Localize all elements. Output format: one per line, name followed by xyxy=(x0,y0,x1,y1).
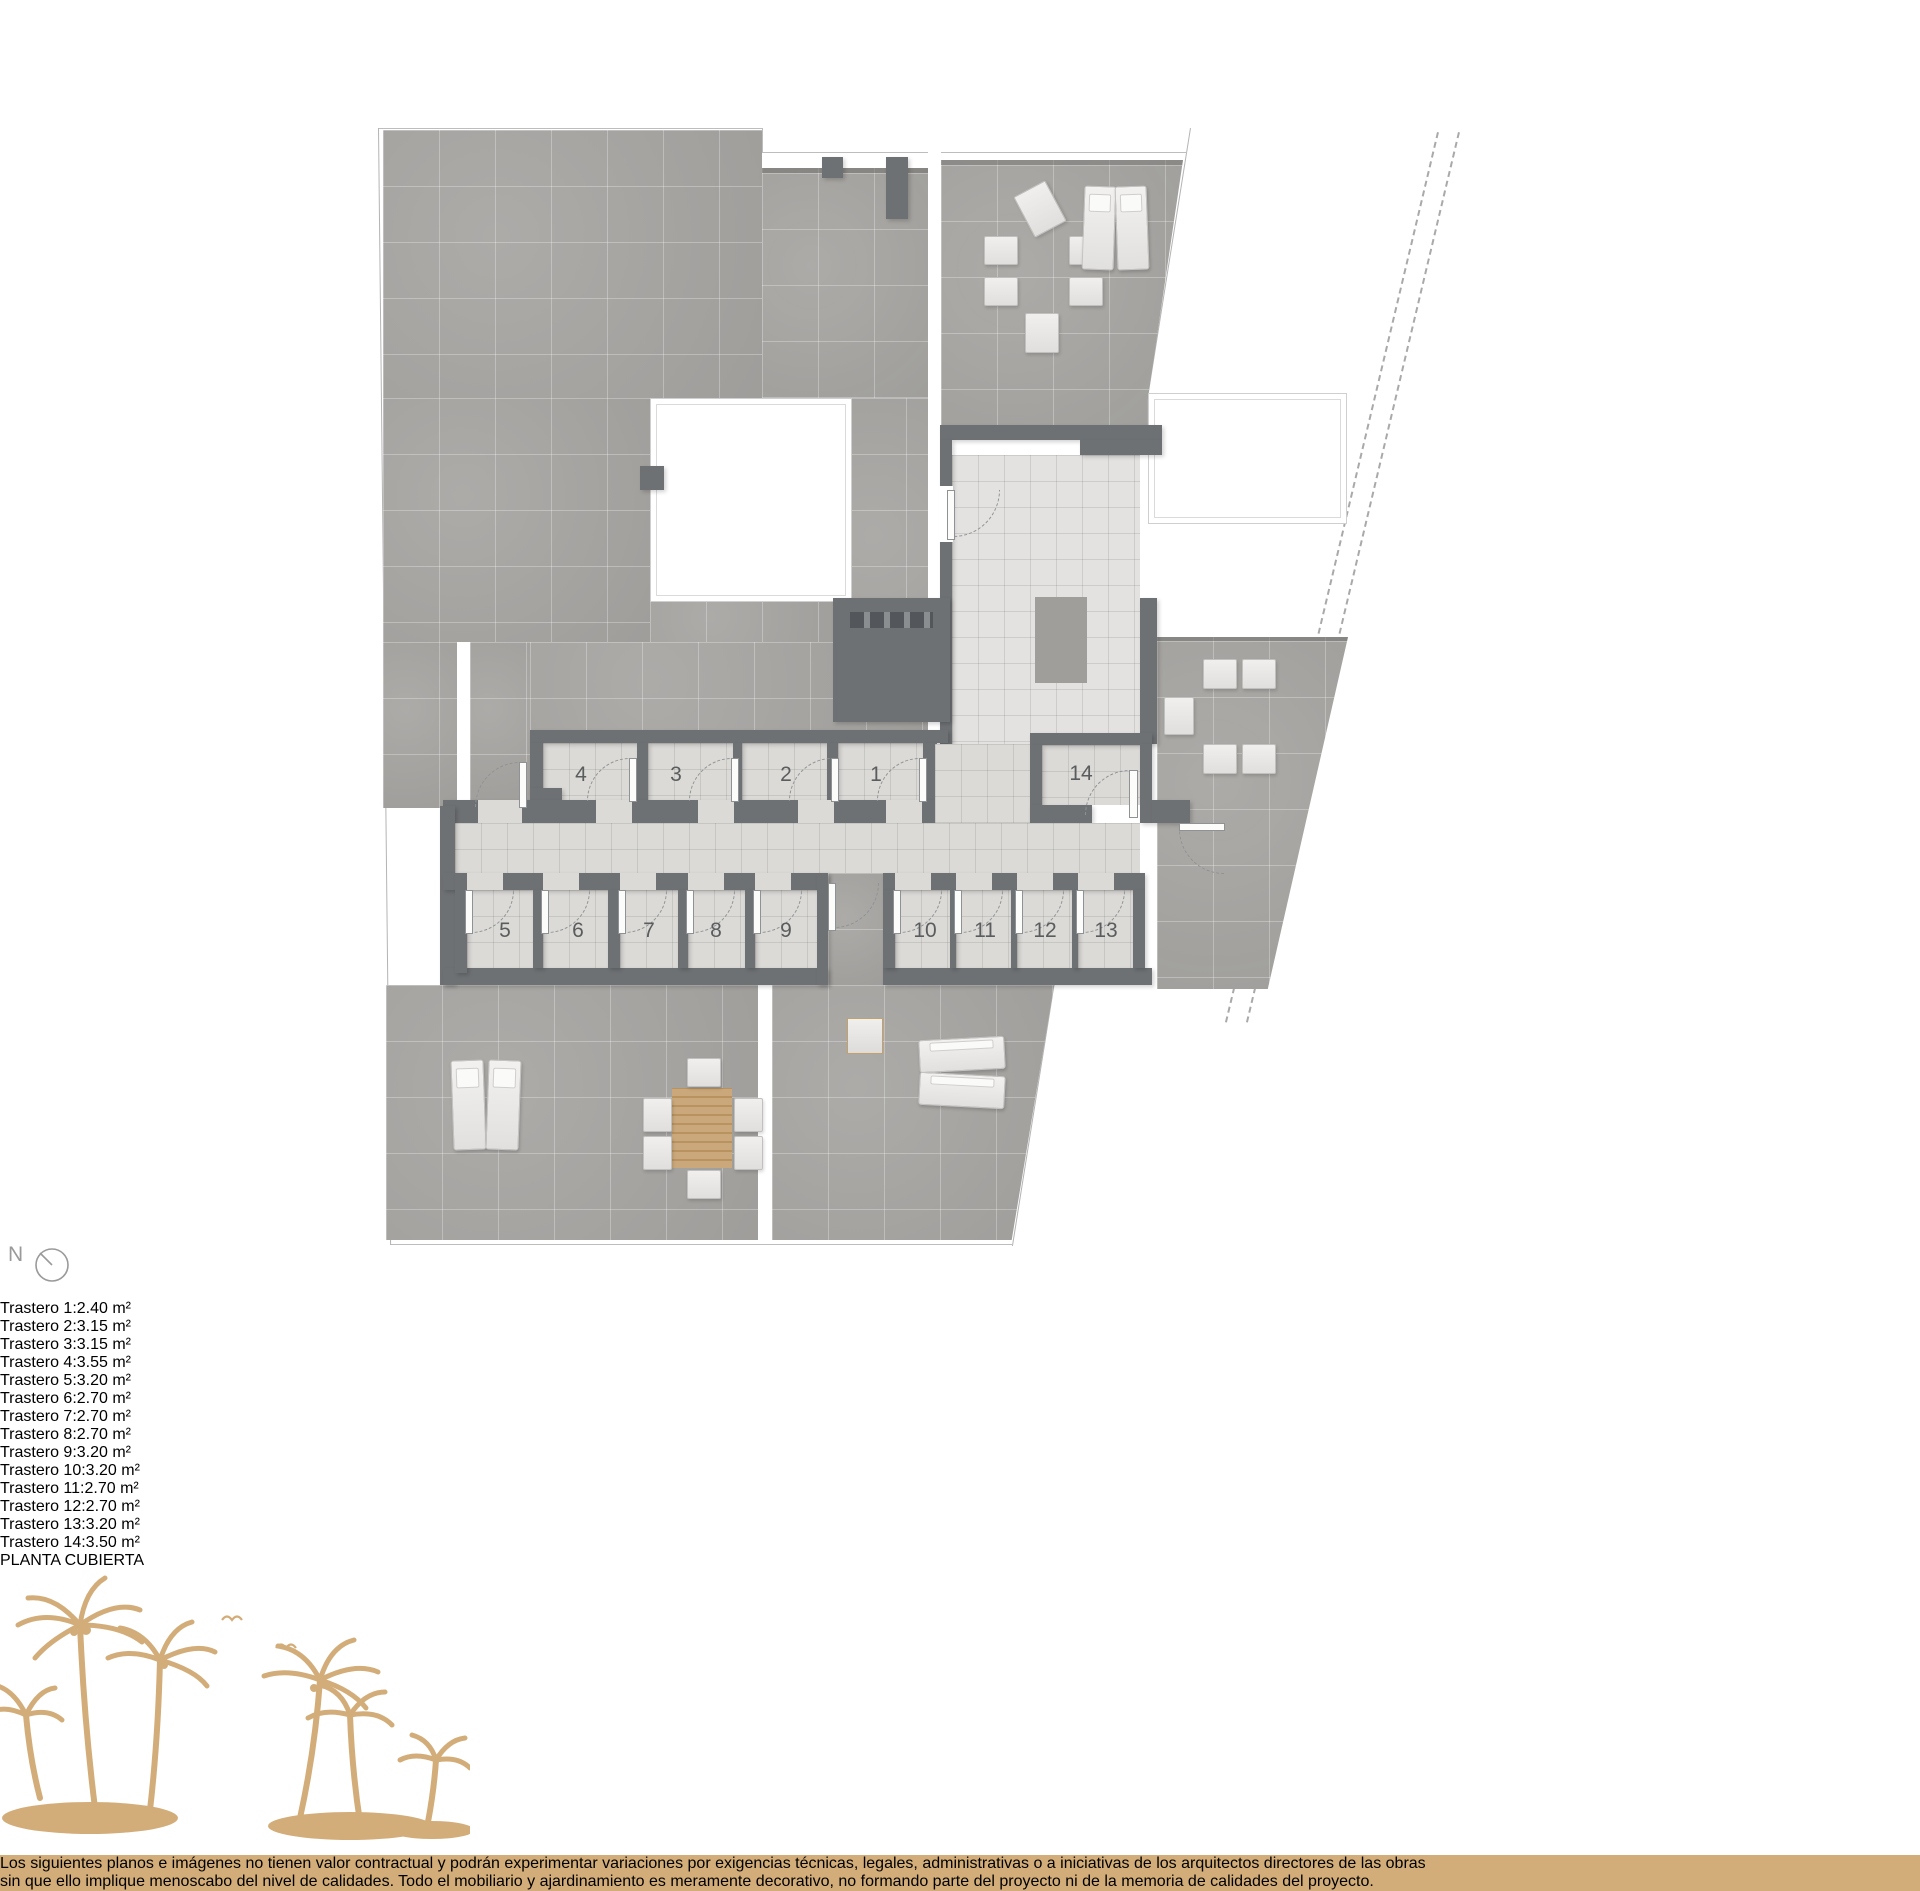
sheet-bottom-edge xyxy=(390,1244,1012,1245)
room6-door-gap xyxy=(543,873,579,890)
dining-chair xyxy=(687,1170,721,1199)
core-wall-top xyxy=(940,425,1162,440)
dining-chair xyxy=(984,277,1018,306)
terrace-left-of-void xyxy=(383,398,650,642)
roof-gap-strip-left xyxy=(457,642,470,808)
footer-disclaimer-line1: Los siguientes planos e imágenes no tien… xyxy=(0,1855,1920,1873)
room-label-11: 11 xyxy=(974,919,996,943)
north-label: N xyxy=(8,1243,23,1266)
room11-door-gap xyxy=(956,873,992,890)
room8-door-leaf xyxy=(686,890,694,934)
parasol xyxy=(0,636,82,718)
roof-void-center xyxy=(650,398,852,602)
stair-treads-lower xyxy=(0,288,105,340)
room-label-9: 9 xyxy=(780,919,792,943)
dining-table-wood xyxy=(1196,692,1280,741)
plants xyxy=(0,613,36,636)
legend-value: 2.70 m² xyxy=(77,1408,131,1425)
passage-door-leaf xyxy=(828,883,836,931)
room14-wall-right xyxy=(1140,744,1152,823)
wall-4-3 xyxy=(637,743,648,803)
core-wall-top-nub xyxy=(1080,440,1162,455)
sheet-top-edge xyxy=(378,128,762,129)
dining-chair xyxy=(1242,659,1276,689)
dining-chair xyxy=(687,1058,721,1087)
room-label-12: 12 xyxy=(1033,919,1056,943)
legend-label: Trastero 7: xyxy=(0,1408,77,1425)
legend-value: 3.50 m² xyxy=(86,1534,140,1551)
room-label-13: 13 xyxy=(1094,919,1117,943)
area-legend: Trastero 1:2.40 m² Trastero 2:3.15 m² Tr… xyxy=(0,1300,1920,1552)
legend-label: Trastero 8: xyxy=(0,1426,77,1443)
footer-disclaimer-line2: sin que ello implique menoscabo del nive… xyxy=(0,1873,1920,1891)
legend-label: Trastero 2: xyxy=(0,1318,77,1335)
plants xyxy=(0,571,55,613)
legend-row: Trastero 3:3.15 m² xyxy=(0,1336,1920,1354)
legend-row: Trastero 11:2.70 m² xyxy=(0,1480,1920,1498)
dining-chair xyxy=(1069,277,1103,306)
room4-door-gap xyxy=(596,800,632,823)
plants xyxy=(0,1111,58,1159)
room12-door-gap xyxy=(1017,873,1053,890)
legend-row: Trastero 6:2.70 m² xyxy=(0,1390,1920,1408)
room13-door-leaf xyxy=(1076,890,1084,934)
room14-wall-bottom xyxy=(1030,805,1092,823)
legend-value: 2.70 m² xyxy=(77,1390,131,1407)
dining-chair xyxy=(643,1098,672,1132)
parasol xyxy=(0,826,88,914)
low-table xyxy=(847,1018,883,1054)
legend-row: Trastero 10:3.20 m² xyxy=(0,1462,1920,1480)
legend-label: Trastero 3: xyxy=(0,1336,77,1353)
legend-value: 3.15 m² xyxy=(77,1336,131,1353)
room12-door-leaf xyxy=(1015,890,1023,934)
sun-lounger xyxy=(918,1072,1006,1109)
room-label-2: 2 xyxy=(780,763,792,787)
room7-door-leaf xyxy=(618,890,626,934)
legend-value: 2.70 m² xyxy=(84,1480,138,1497)
terrace-bottom-right xyxy=(772,985,1054,1240)
legend-row: Trastero 2:3.15 m² xyxy=(0,1318,1920,1336)
north-arrow: N xyxy=(0,1225,84,1295)
room-label-14: 14 xyxy=(1069,762,1092,786)
legend-row: Trastero 1:2.40 m² xyxy=(0,1300,1920,1318)
room-label-6: 6 xyxy=(572,919,584,943)
side-table-round xyxy=(0,438,21,459)
terrace-left-strip xyxy=(383,642,457,808)
legend-value: 3.20 m² xyxy=(86,1462,140,1479)
terrace-door-leaf xyxy=(519,762,527,808)
legend-label: Trastero 1: xyxy=(0,1300,77,1317)
legend-value: 2.70 m² xyxy=(86,1498,140,1515)
parasol xyxy=(0,459,74,533)
page: { "plan": { "title": "PLANTA CUBIERTA", … xyxy=(0,0,1920,1370)
sun-lounger xyxy=(1115,185,1150,270)
legend-value: 3.20 m² xyxy=(77,1372,131,1389)
room10-door-leaf xyxy=(893,890,901,934)
plants xyxy=(0,914,50,954)
dining-chair xyxy=(1025,313,1059,353)
room-label-3: 3 xyxy=(670,763,682,787)
legend-label: Trastero 14: xyxy=(0,1534,86,1551)
dining-chair xyxy=(734,1098,763,1132)
legend-row: Trastero 5:3.20 m² xyxy=(0,1372,1920,1390)
legend-row: Trastero 13:3.20 m² xyxy=(0,1516,1920,1534)
stair-landing xyxy=(1035,597,1087,683)
planter-box xyxy=(0,770,28,798)
room-label-5: 5 xyxy=(499,919,511,943)
room3-door-leaf xyxy=(731,758,739,802)
room4-door-leaf xyxy=(629,758,637,802)
sun-lounger xyxy=(450,1059,486,1150)
hedge xyxy=(0,718,196,748)
legend-label: Trastero 5: xyxy=(0,1372,77,1389)
legend-label: Trastero 12: xyxy=(0,1498,86,1515)
room14-door-leaf xyxy=(1129,770,1138,818)
legend-row: Trastero 14:3.50 m² xyxy=(0,1534,1920,1552)
legend-label: Trastero 4: xyxy=(0,1354,77,1371)
stair-treads-right xyxy=(0,0,50,288)
room5-door-leaf xyxy=(465,890,473,934)
legend-value: 3.15 m² xyxy=(77,1318,131,1335)
room1-door-leaf xyxy=(919,758,927,802)
room14-wall-nub xyxy=(1152,800,1190,823)
dining-table-wood xyxy=(1017,233,1068,312)
legend-value: 2.40 m² xyxy=(77,1300,131,1317)
room6-door-leaf xyxy=(541,890,549,934)
room-label-1: 1 xyxy=(870,763,882,787)
bottomrow-wall-bottom-a xyxy=(443,968,828,985)
page-title: PLANTA CUBIERTA xyxy=(0,1552,1920,1570)
legend-row: Trastero 7:2.70 m² xyxy=(0,1408,1920,1426)
floor-plan: 1 2 3 4 5 6 7 8 9 10 11 12 13 14 xyxy=(0,0,1920,1891)
room-label-4: 4 xyxy=(575,763,587,787)
chimney-block-small xyxy=(822,157,843,178)
legend-row: Trastero 8:2.70 m² xyxy=(0,1426,1920,1444)
room9-door-gap xyxy=(755,873,791,890)
legend-value: 2.70 m² xyxy=(77,1426,131,1443)
corridor-wall-left xyxy=(440,806,455,985)
dining-chair xyxy=(984,236,1018,265)
room14-wall-top xyxy=(1030,733,1152,745)
legend-label: Trastero 13: xyxy=(0,1516,86,1533)
room1-door-gap xyxy=(886,800,922,823)
legend-row: Trastero 9:3.20 m² xyxy=(0,1444,1920,1462)
dining-chair xyxy=(1203,744,1237,774)
elevator-machinery xyxy=(850,612,933,628)
room3-door-gap xyxy=(698,800,734,823)
room7-door-gap xyxy=(620,873,656,890)
sun-lounger xyxy=(918,1036,1006,1073)
plants xyxy=(0,1191,52,1225)
terrace-top-left xyxy=(383,130,762,398)
sheet-top-edge-step xyxy=(762,128,763,152)
chimney-block-tall xyxy=(886,157,908,219)
side-table-round xyxy=(0,748,22,770)
elevator-car xyxy=(0,340,79,412)
room-label-10: 10 xyxy=(913,919,936,943)
plants xyxy=(0,1159,52,1191)
footer-bar: Los siguientes planos e imágenes no tien… xyxy=(0,1855,1920,1891)
room2-door-leaf xyxy=(831,758,839,802)
room9-wall-right xyxy=(817,873,828,985)
legend-value: 3.55 m² xyxy=(77,1354,131,1371)
legend-value: 3.20 m² xyxy=(77,1444,131,1461)
legend-label: Trastero 6: xyxy=(0,1390,77,1407)
sun-lounger xyxy=(485,1059,521,1150)
dining-chair xyxy=(1203,659,1237,689)
roof-void-right xyxy=(1148,393,1347,524)
corridor-floor xyxy=(455,823,1140,873)
planter-box xyxy=(0,798,28,826)
palm-trees-graphic xyxy=(0,1570,470,1850)
room2-door-gap xyxy=(798,800,834,823)
room11-door-leaf xyxy=(954,890,962,934)
room5-door-gap xyxy=(467,873,503,890)
room10-door-gap xyxy=(895,873,931,890)
legend-value: 3.20 m² xyxy=(86,1516,140,1533)
dining-chair xyxy=(643,1136,672,1170)
dining-table-wood xyxy=(672,1088,732,1168)
room-label-7: 7 xyxy=(643,919,655,943)
room8-door-gap xyxy=(688,873,724,890)
room13-wall-right xyxy=(1133,890,1145,968)
legend-label: Trastero 11: xyxy=(0,1480,84,1497)
bottomrow-wall-bottom-b xyxy=(883,968,1152,985)
room4-wall-left xyxy=(530,743,543,793)
corridor-b-floor xyxy=(935,744,1030,824)
plants xyxy=(0,954,55,999)
plants xyxy=(0,533,55,571)
sun-lounger xyxy=(1082,185,1117,270)
room-label-8: 8 xyxy=(710,919,722,943)
dining-chair xyxy=(734,1136,763,1170)
toprow-wall-top xyxy=(530,730,948,743)
parasol xyxy=(0,1027,84,1111)
planter-box xyxy=(0,412,26,438)
room13-door-gap xyxy=(1078,873,1114,890)
core-door-leaf xyxy=(947,490,955,540)
dining-chair xyxy=(1242,744,1276,774)
terrace-right-door-leaf xyxy=(1179,823,1225,831)
sheet-top-edge-right xyxy=(762,152,1186,153)
planter-box xyxy=(0,999,28,1027)
terrace-below-void-a xyxy=(650,600,850,642)
legend-label: Trastero 10: xyxy=(0,1462,86,1479)
dining-chair xyxy=(1164,697,1194,735)
legend-label: Trastero 9: xyxy=(0,1444,77,1461)
room9-door-leaf xyxy=(753,890,761,934)
legend-row: Trastero 4:3.55 m² xyxy=(0,1354,1920,1372)
core-wall-right xyxy=(1140,598,1157,744)
void-edge-block xyxy=(640,466,664,490)
legend-row: Trastero 12:2.70 m² xyxy=(0,1498,1920,1516)
